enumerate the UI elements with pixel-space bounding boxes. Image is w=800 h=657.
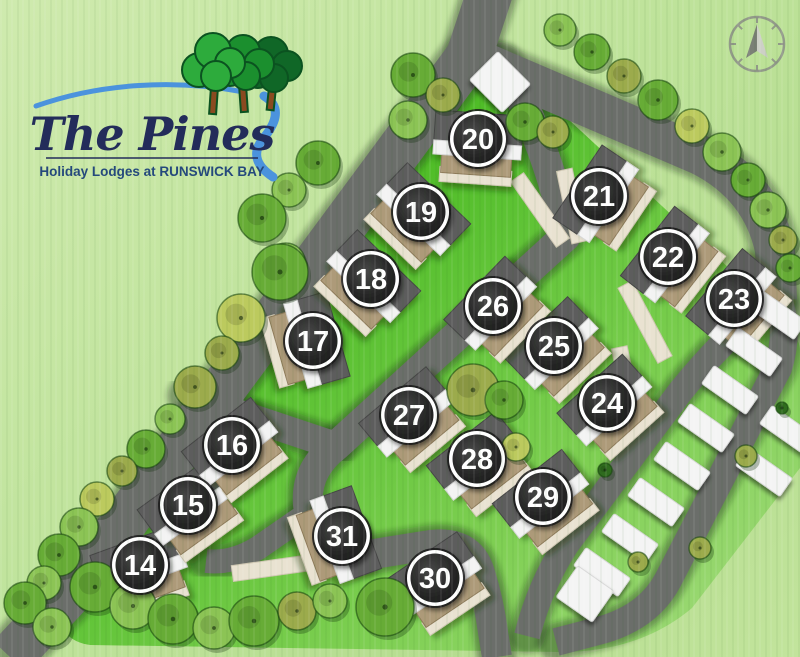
lodge-number: 21 (583, 181, 615, 213)
lodge-number: 31 (326, 521, 358, 553)
lodge-badge-22[interactable]: 22 (638, 227, 698, 287)
lodge-number: 16 (216, 430, 248, 462)
lodge-badge-28[interactable]: 28 (447, 429, 507, 489)
lodge-number: 26 (477, 291, 509, 323)
lodge-number: 27 (393, 400, 425, 432)
lodge-number: 29 (527, 482, 559, 514)
lodge-badge-14[interactable]: 14 (110, 535, 170, 595)
lodge-number: 17 (297, 326, 329, 358)
lodge-badge-26[interactable]: 26 (463, 276, 523, 336)
lodge-number: 19 (405, 197, 437, 229)
lodge-badge-27[interactable]: 27 (379, 385, 439, 445)
lodge-number: 15 (172, 490, 204, 522)
lodge-number: 18 (355, 264, 387, 296)
lodge-badge-24[interactable]: 24 (577, 373, 637, 433)
compass-icon (730, 17, 784, 71)
lodge-number: 25 (538, 331, 570, 363)
lodge-number: 20 (462, 124, 494, 156)
lodge-badge-21[interactable]: 21 (569, 166, 629, 226)
lodge-badge-29[interactable]: 29 (513, 467, 573, 527)
lodge-badge-30[interactable]: 30 (405, 548, 465, 608)
lodge-number: 23 (718, 284, 750, 316)
lodge-number: 22 (652, 242, 684, 274)
lodge-number: 30 (419, 563, 451, 595)
lodge-badge-20[interactable]: 20 (448, 109, 508, 169)
lodge-badge-25[interactable]: 25 (524, 316, 584, 376)
lodge-number: 28 (461, 444, 493, 476)
tree (544, 14, 579, 50)
lodge-badge-19[interactable]: 19 (391, 182, 451, 242)
site-map-svg: 141516171819202122232425262728293031 (0, 0, 800, 657)
lodge-badge-16[interactable]: 16 (202, 415, 262, 475)
lodge-badge-31[interactable]: 31 (312, 506, 372, 566)
lodge-badge-17[interactable]: 17 (283, 311, 343, 371)
lodge-number: 24 (591, 388, 623, 420)
tree (574, 34, 613, 74)
lodge-badge-23[interactable]: 23 (704, 269, 764, 329)
site-plan: 141516171819202122232425262728293031 (0, 0, 800, 657)
lodge-badge-15[interactable]: 15 (158, 475, 218, 535)
lodge-number: 14 (124, 550, 156, 582)
lodge-badge-18[interactable]: 18 (341, 249, 401, 309)
